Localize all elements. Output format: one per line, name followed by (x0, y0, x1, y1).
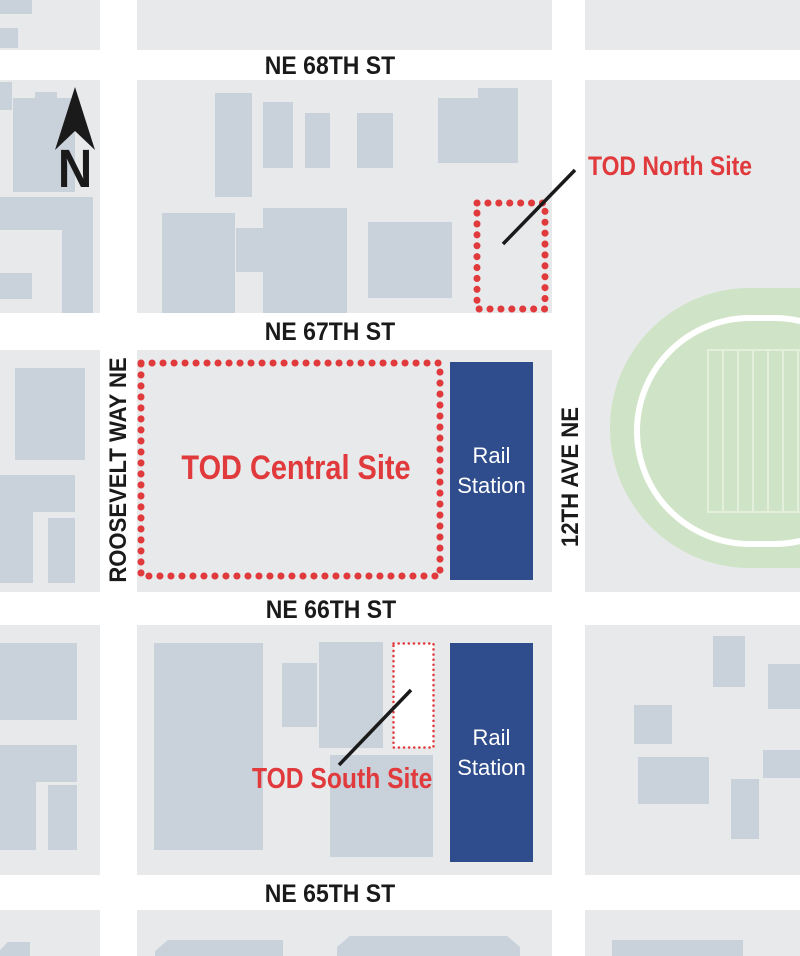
tod-central-site-label: TOD Central Site (169, 449, 424, 488)
street-label-12th-ave: 12TH AVE NE (557, 385, 581, 569)
tod-sites-map: Rail Station Rail Station NE 68TH ST NE … (0, 0, 800, 956)
street-label-ne-67th: NE 67TH ST (238, 318, 422, 347)
compass-north-letter: N (55, 138, 95, 200)
rail-station-label-line1: Rail (473, 441, 511, 471)
tod-north-site-boundary (477, 203, 545, 309)
street-label-ne-68th: NE 68TH ST (238, 52, 422, 81)
tod-south-site-boundary (394, 644, 434, 748)
rail-station-label-line2: Station (457, 753, 526, 783)
street-label-ne-66th: NE 66TH ST (239, 596, 423, 625)
street-label-roosevelt-way: ROOSEVELT WAY NE (105, 350, 129, 589)
yard-lines (708, 350, 800, 512)
rail-station-label-line1: Rail (473, 723, 511, 753)
rail-station-label-line2: Station (457, 471, 526, 501)
leader-line-north (503, 170, 575, 244)
rail-station-south: Rail Station (450, 643, 533, 862)
tod-south-site-label: TOD South Site (252, 763, 422, 796)
tod-north-site-label: TOD North Site (585, 151, 755, 182)
running-track (637, 318, 800, 544)
street-label-ne-65th: NE 65TH ST (238, 880, 422, 909)
rail-station-central: Rail Station (450, 362, 533, 580)
